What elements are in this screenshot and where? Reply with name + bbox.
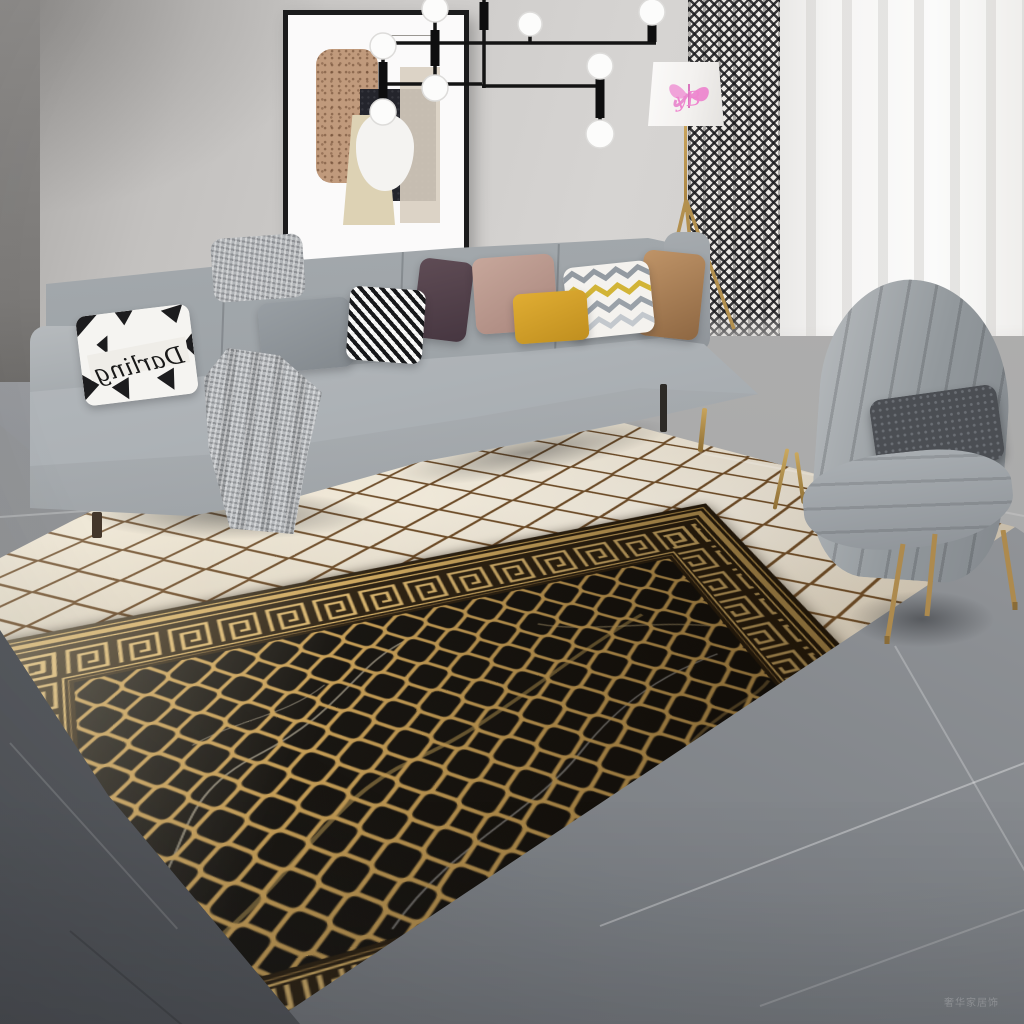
sofa-leg (92, 512, 102, 538)
throw-blanket-top (210, 233, 306, 303)
armchair-gold-legs (855, 530, 1024, 660)
watermark: 奢华家居饰 (944, 994, 1020, 1010)
wingback-armchair (795, 280, 1024, 660)
darling-pillow: Darling (75, 303, 199, 406)
lamp-monogram: yB (665, 82, 712, 116)
darling-pillow-graphic: Darling (75, 303, 199, 406)
sofa-leg (660, 384, 667, 432)
houndstooth-pillow (346, 285, 427, 364)
mustard-lumbar-pillow (512, 289, 589, 344)
living-room-photo: yB (0, 0, 1024, 1024)
